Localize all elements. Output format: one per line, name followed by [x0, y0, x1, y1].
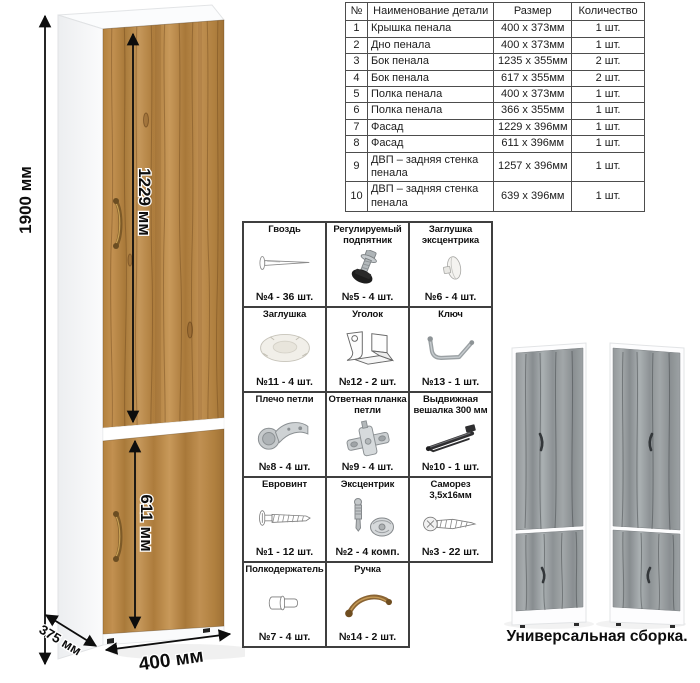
- table-row: 6Полка пенала366 х 355мм1 шт.: [346, 103, 645, 119]
- parts-table: № Наименование детали Размер Количество …: [345, 2, 645, 212]
- nail-icon: [249, 246, 321, 280]
- cam-cover-icon: [415, 252, 487, 286]
- table-row: 8Фасад611 х 396мм1 шт.: [346, 136, 645, 152]
- shelf-pin-icon: [249, 586, 321, 620]
- table-row: 10ДВП – задняя стенка пенала639 х 396мм1…: [346, 182, 645, 212]
- cam-lock-icon: [332, 497, 404, 539]
- table-row: 4Бок пенала617 х 355мм2 шт.: [346, 70, 645, 86]
- handle-icon: [332, 583, 404, 623]
- hardware-cell-handle: Ручка №14 - 2 шт.: [325, 561, 410, 648]
- plug-cap-icon: [249, 329, 321, 367]
- hardware-cell-adjustable-foot: Регулируемый подпятник №5 - 4 шт.: [325, 221, 410, 308]
- table-row: 2Дно пенала400 х 373мм1 шт.: [346, 37, 645, 53]
- hardware-cell-euro-screw: Евровинт №1 - 12 шт.: [242, 476, 327, 563]
- col-part-name: Наименование детали: [367, 3, 493, 21]
- table-row: 1Крышка пенала400 х 373мм1 шт.: [346, 21, 645, 37]
- hardware-cell-corner-bracket: Уголок №12 - 2 шт.: [325, 306, 410, 393]
- self-tapping-screw-icon: [415, 506, 487, 542]
- hardware-cell-self-tapping-screw: Саморез 3,5х16мм №3 - 22 шт.: [408, 476, 493, 563]
- universal-assembly-caption: Универсальная сборка.: [494, 628, 700, 646]
- col-size: Размер: [494, 3, 572, 21]
- hardware-cell-cam-lock: Эксцентрик №2 - 4 комп.: [325, 476, 410, 563]
- col-quantity: Количество: [572, 3, 645, 21]
- hardware-cell-hex-key: Ключ №13 - 1 шт.: [408, 306, 493, 393]
- corner-bracket-icon: [332, 328, 404, 368]
- table-row: 5Полка пенала400 х 373мм1 шт.: [346, 87, 645, 103]
- assembled-variants-image: [496, 338, 700, 630]
- lower-door-dimension-label: 611 мм: [137, 494, 156, 551]
- hex-key-icon: [415, 329, 487, 367]
- table-row: 3Бок пенала1235 х 355мм2 шт.: [346, 54, 645, 70]
- hardware-cell-hinge-arm: Плечо петли №8 - 4 шт.: [242, 391, 327, 478]
- height-dimension-label: 1900 мм: [16, 166, 35, 234]
- pullout-hanger-icon: [415, 422, 487, 456]
- hardware-cell-cam-cover: Заглушка эксцентрика №6 - 4 шт.: [408, 221, 493, 308]
- hardware-grid: Гвоздь №4 - 36 шт. Регулируемый подпятни…: [242, 221, 493, 648]
- table-row: 9ДВП – задняя стенка пенала1257 х 396мм1…: [346, 152, 645, 182]
- col-number: №: [346, 3, 368, 21]
- hardware-cell-nail: Гвоздь №4 - 36 шт.: [242, 221, 327, 308]
- table-row: 7Фасад1229 х 396мм1 шт.: [346, 119, 645, 135]
- adjustable-foot-icon: [332, 250, 404, 288]
- variant-cabinet-right: [610, 343, 684, 628]
- cabinet-drawing: 1900 мм 1229 мм 611 мм 400 мм 375 мм: [0, 0, 245, 683]
- hardware-cell-pullout-hanger: Выдвижная вешалка 300 мм №10 - 1 шт.: [408, 391, 493, 478]
- hardware-cell-shelf-pin: Полкодержатель №7 - 4 шт.: [242, 561, 327, 648]
- hinge-plate-icon: [332, 419, 404, 459]
- hinge-arm-icon: [249, 413, 321, 453]
- hardware-cell-hinge-plate: Ответная планка петли №9 - 4 шт.: [325, 391, 410, 478]
- euro-screw-icon: [249, 501, 321, 535]
- parts-table-header-row: № Наименование детали Размер Количество: [346, 3, 645, 21]
- hardware-cell-plug-cap: Заглушка №11 - 4 шт.: [242, 306, 327, 393]
- upper-door-dimension-label: 1229 мм: [135, 168, 154, 236]
- variant-cabinet-left: [512, 343, 586, 628]
- assembly-sheet: 1900 мм 1229 мм 611 мм 400 мм 375 мм № Н…: [0, 0, 700, 683]
